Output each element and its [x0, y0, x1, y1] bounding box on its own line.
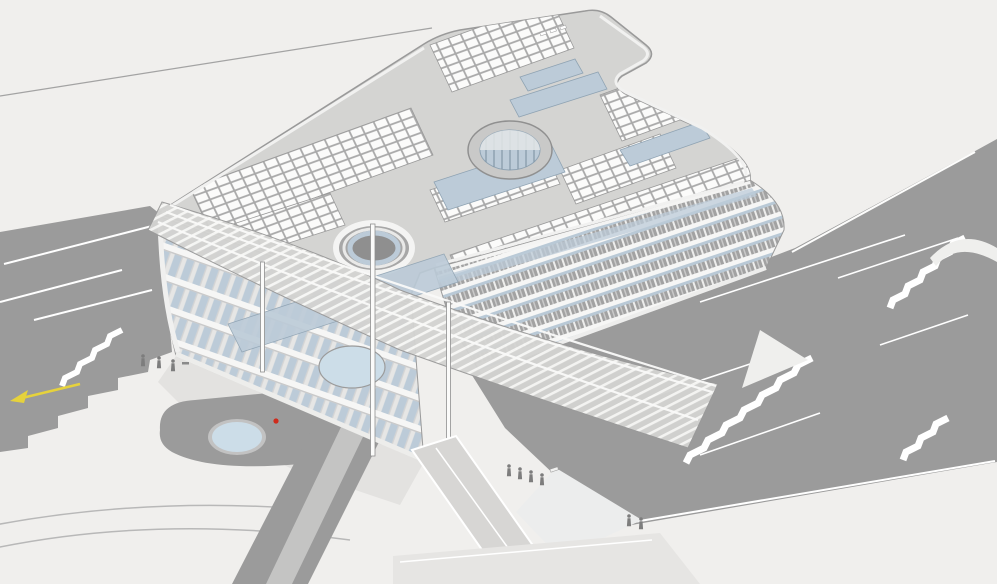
circular-atrium	[468, 121, 552, 179]
lower-pond	[212, 422, 262, 452]
model-viewport[interactable]: Axonometric 3D architectural model view	[0, 0, 997, 584]
marker-dot	[273, 418, 278, 423]
architectural-model-canvas[interactable]: Axonometric 3D architectural model view	[0, 0, 997, 584]
